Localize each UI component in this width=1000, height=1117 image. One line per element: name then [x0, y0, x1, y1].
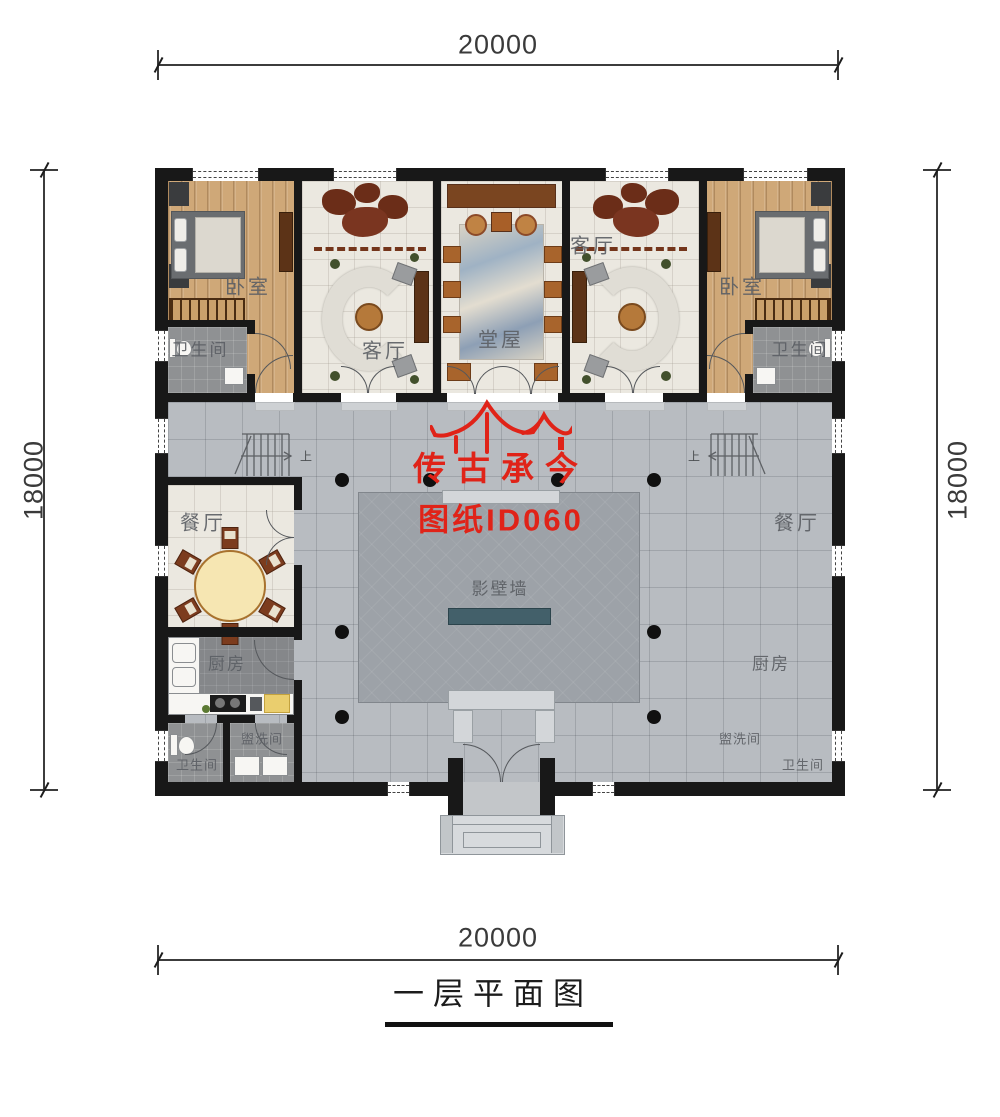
sideboard	[447, 184, 556, 208]
window	[832, 330, 845, 362]
threshold	[255, 402, 295, 411]
burner	[230, 698, 240, 708]
side-seat	[544, 316, 562, 333]
stairs-right	[703, 432, 767, 480]
bath-sink	[756, 367, 776, 385]
hall-chair	[515, 214, 537, 236]
watermark-brand: 传古承今	[413, 442, 589, 490]
wash-sink	[234, 756, 260, 776]
tv-bench	[572, 271, 587, 343]
window	[832, 730, 845, 762]
hall	[441, 181, 562, 393]
pillow	[174, 218, 187, 242]
tv-cabinet	[707, 212, 721, 272]
tv-cabinet	[279, 212, 293, 272]
side-seat	[443, 246, 461, 263]
window	[743, 168, 808, 181]
counter-mat	[264, 694, 290, 713]
window	[592, 782, 615, 796]
window	[333, 168, 397, 181]
window	[155, 330, 168, 362]
plant	[330, 259, 340, 269]
plant	[410, 375, 419, 384]
bath-top-right-label: 卫生间	[772, 336, 829, 361]
screen-wall	[448, 608, 551, 625]
bedroom-left-label: 卧室	[225, 271, 271, 300]
small-appliance	[250, 697, 262, 711]
plant	[661, 259, 671, 269]
dining-table	[194, 550, 266, 622]
court-step-leg	[453, 710, 473, 743]
living-left-label: 客厅	[362, 335, 408, 364]
dining-right-label: 餐厅	[774, 507, 820, 536]
ac-unit	[169, 182, 189, 206]
window	[155, 418, 168, 454]
kitchen-left-label: 厨房	[208, 650, 246, 675]
dining-left-label: 餐厅	[180, 507, 226, 536]
living-right	[568, 181, 699, 393]
root-carving-decor	[354, 183, 380, 203]
kitchen-right-label: 厨房	[752, 650, 790, 675]
round-tea-table	[355, 303, 383, 331]
column-dot	[335, 710, 349, 724]
window	[605, 168, 669, 181]
dim-bottom-value: 20000	[458, 923, 538, 954]
entrance-passage	[463, 782, 540, 815]
column-dot	[647, 625, 661, 639]
watermark-sheet-id: 图纸ID060	[418, 495, 584, 540]
kitchen-sink	[172, 643, 196, 663]
plant	[410, 253, 419, 262]
dim-bottom-line	[158, 959, 838, 961]
stairs-up-label-right: 上	[688, 448, 700, 465]
side-seat	[443, 281, 461, 298]
root-carving-decor	[621, 183, 647, 203]
burner	[215, 698, 225, 708]
title-underline	[385, 1022, 613, 1027]
column-dot	[335, 625, 349, 639]
wash-sink	[262, 756, 288, 776]
dim-left-value: 18000	[19, 440, 50, 520]
root-carving-decor	[613, 207, 659, 237]
living-right-label: 客厅	[570, 230, 616, 259]
wash-right-label: 盥洗间	[719, 729, 761, 748]
dim-right-line	[936, 170, 938, 790]
bed-blanket	[759, 217, 805, 273]
root-carving-decor	[342, 207, 388, 237]
hall-label: 堂屋	[478, 324, 524, 353]
screen-wall-label: 影壁墙	[472, 575, 529, 600]
side-seat	[544, 246, 562, 263]
floor-plan-sheet: 20000 20000 18000 18000	[0, 0, 1000, 1117]
window	[192, 168, 259, 181]
column-dot	[647, 710, 661, 724]
bath-bottom-right-label: 卫生间	[782, 755, 824, 774]
pillow	[174, 248, 187, 272]
window	[387, 782, 410, 796]
stairs-left	[233, 432, 297, 480]
drawing-title: 一层平面图	[393, 969, 593, 1014]
wash-left-label: 盥洗间	[241, 729, 283, 748]
entrance-pier	[540, 758, 555, 815]
threshold	[605, 402, 665, 411]
threshold	[341, 402, 398, 411]
plant	[330, 371, 340, 381]
column-dot	[335, 473, 349, 487]
entrance-steps	[440, 815, 565, 855]
bath-bottom-left-label: 卫生间	[176, 755, 218, 774]
tv-bench	[414, 271, 429, 343]
window	[155, 730, 168, 762]
window	[155, 545, 168, 577]
pillow	[813, 218, 826, 242]
window	[832, 545, 845, 577]
dim-right-value: 18000	[943, 440, 974, 520]
round-tea-table	[618, 303, 646, 331]
decor-dashed-line	[314, 247, 426, 251]
hall-table	[491, 212, 512, 232]
kitchen-sink	[172, 667, 196, 687]
bed-blanket	[195, 217, 241, 273]
pillow	[813, 248, 826, 272]
hall-chair	[465, 214, 487, 236]
dim-top-value: 20000	[458, 30, 538, 61]
plant	[582, 375, 591, 384]
entrance-pier	[448, 758, 463, 815]
court-bottom-step	[448, 690, 555, 710]
dim-top-line	[158, 64, 838, 66]
bath-top-left-label: 卫生间	[172, 336, 229, 361]
side-seat	[544, 281, 562, 298]
column-dot	[647, 473, 661, 487]
window	[832, 418, 845, 454]
court-step-leg	[535, 710, 555, 743]
threshold	[707, 402, 747, 411]
plant	[202, 705, 210, 713]
bedroom-right-label: 卧室	[719, 271, 765, 300]
toilet-tank	[170, 734, 178, 756]
plant	[661, 371, 671, 381]
ac-unit	[811, 182, 831, 206]
side-seat	[443, 316, 461, 333]
stairs-up-label-left: 上	[300, 448, 312, 465]
bath-sink	[224, 367, 244, 385]
